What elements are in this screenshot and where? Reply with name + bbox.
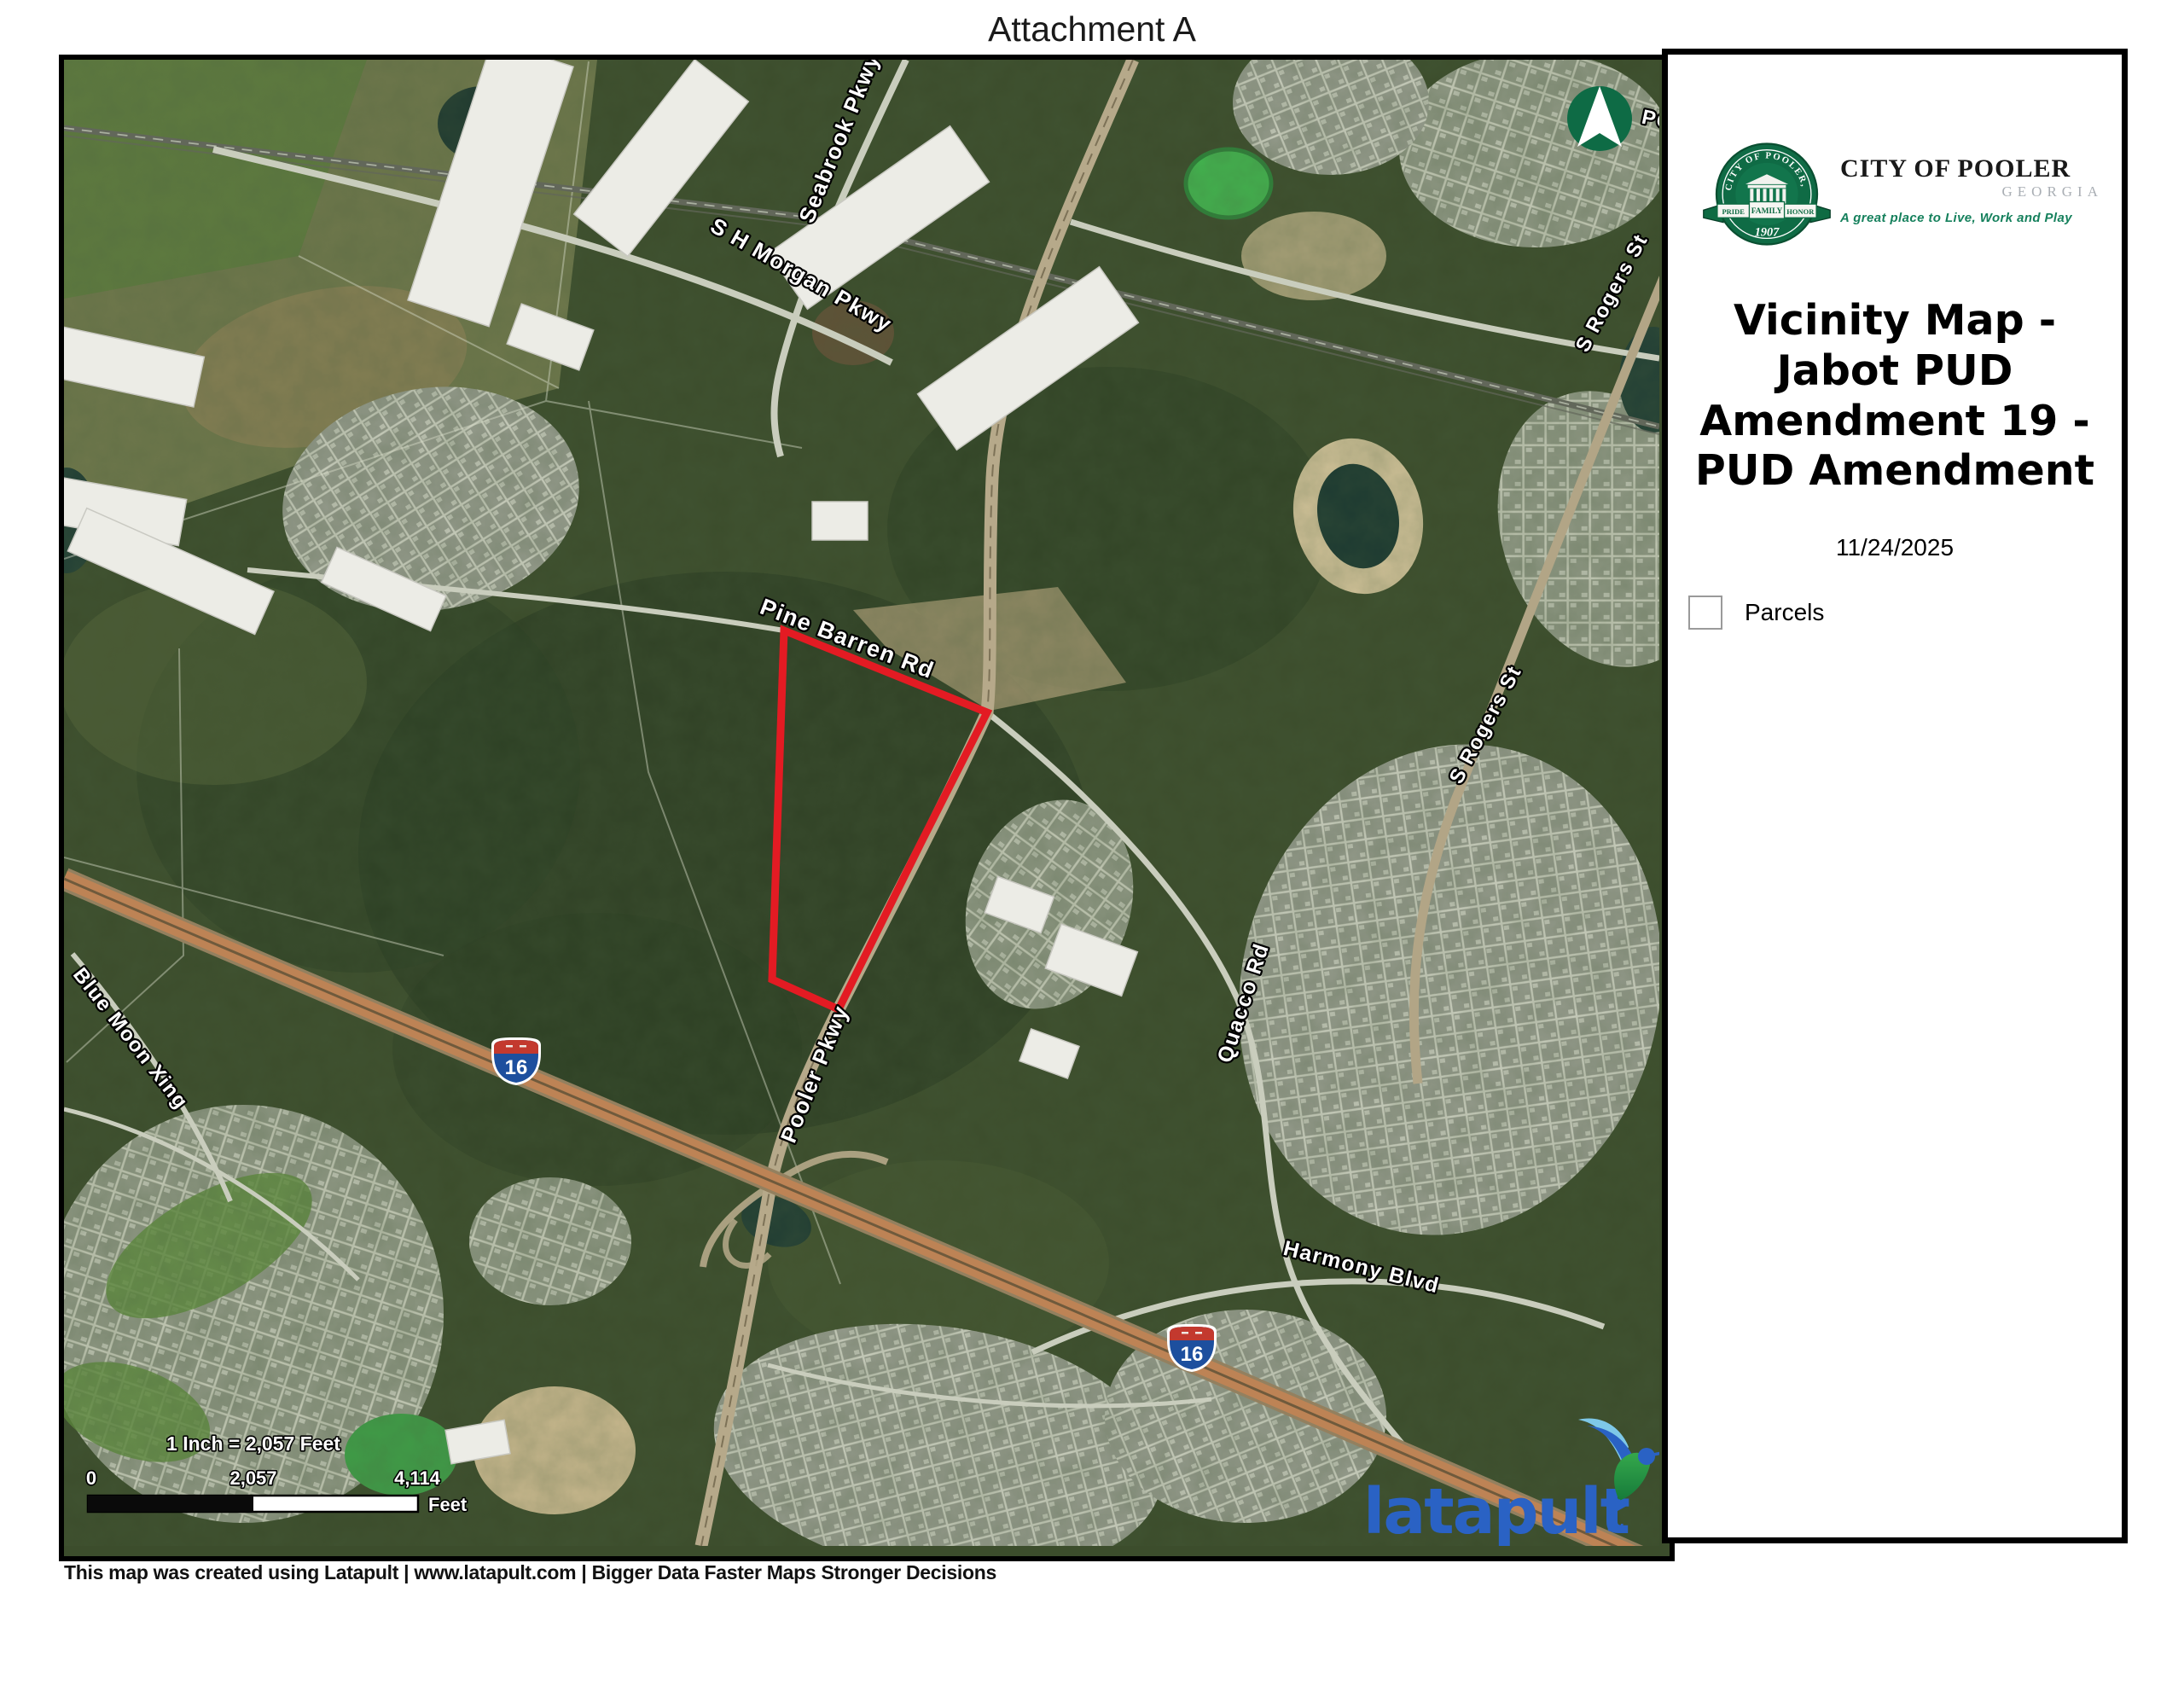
terrain-noise-overlay [64, 60, 1659, 1546]
attachment-header: Attachment A [0, 7, 2184, 51]
scale-tick-mid: 2,057 [229, 1467, 276, 1489]
footer-caption: This map was created using Latapult | ww… [64, 1561, 1600, 1584]
satellite-map-canvas: 16 16 Seabrook Pkwy S H Morgan Pkwy Pine… [64, 60, 1659, 1546]
seal-year: 1907 [1755, 226, 1780, 240]
scale-unit-label: Feet [428, 1494, 468, 1515]
map-date: 11/24/2025 [1668, 534, 2122, 561]
svg-text:16: 16 [505, 1056, 528, 1079]
page-root: Attachment A [0, 0, 2184, 1685]
org-state: GEORGIA [1840, 183, 2105, 200]
org-tagline: A great place to Live, Work and Play [1840, 211, 2105, 225]
scale-tick-max: 4,114 [394, 1467, 441, 1489]
latapult-sm-mark: SM [1607, 1521, 1624, 1534]
seal-ribbon-honor: HONOR [1786, 207, 1815, 216]
city-brand-block: CITY OF POOLER, GA PRIDE FA [1702, 136, 2105, 260]
seal-ribbon-pride: PRIDE [1722, 207, 1745, 216]
scale-tick-0: 0 [86, 1467, 96, 1489]
city-of-pooler-seal-logo: CITY OF POOLER, GA PRIDE FA [1702, 136, 1832, 260]
legend-parcels-row: Parcels [1688, 596, 2122, 630]
north-arrow-icon [1567, 86, 1632, 151]
brand-text-block: CITY OF POOLER GEORGIA A great place to … [1840, 136, 2105, 225]
latapult-wordmark: latapult [1363, 1475, 1629, 1546]
svg-text:16: 16 [1181, 1343, 1204, 1366]
seal-ribbon-family: FAMILY [1751, 207, 1783, 216]
org-name: CITY OF POOLER [1840, 154, 2105, 183]
map-title: Vicinity Map - Jabot PUD Amendment 19 - … [1693, 296, 2097, 497]
scale-ratio-text: 1 Inch = 2,057 Feet [166, 1432, 340, 1455]
info-panel: CITY OF POOLER, GA PRIDE FA [1662, 49, 2128, 1543]
parcels-layer-checkbox[interactable] [1688, 596, 1722, 630]
parcels-legend-label: Parcels [1745, 599, 1824, 626]
map-frame: 16 16 Seabrook Pkwy S H Morgan Pkwy Pine… [59, 55, 1675, 1561]
seal-ribbon: PRIDE FAMILY HONOR [1717, 201, 1816, 218]
